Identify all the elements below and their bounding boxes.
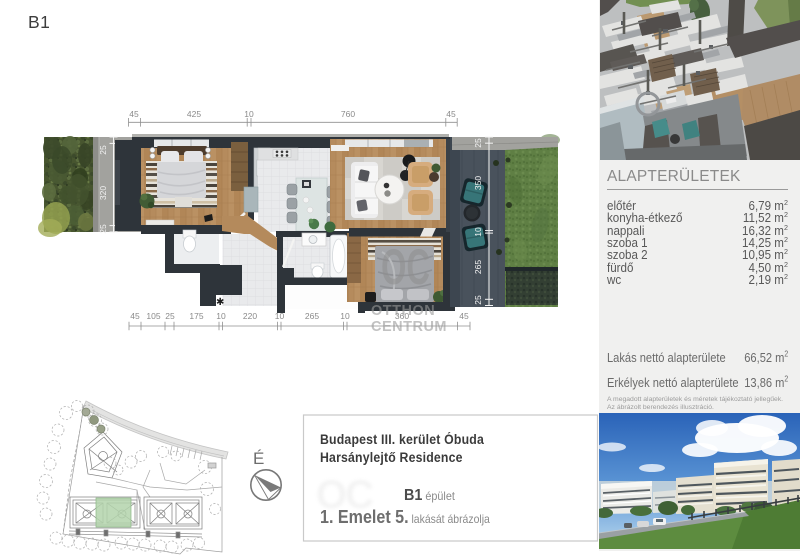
svg-text:25: 25	[98, 224, 108, 234]
svg-text:105: 105	[146, 311, 160, 321]
svg-text:OTTHON: OTTHON	[371, 303, 435, 319]
svg-text:45: 45	[129, 109, 139, 119]
svg-text:265: 265	[473, 260, 483, 274]
svg-text:✱: ✱	[216, 297, 224, 308]
svg-text:25: 25	[473, 138, 483, 148]
svg-text:25: 25	[98, 145, 108, 155]
svg-text:25: 25	[473, 295, 483, 305]
svg-text:25: 25	[165, 311, 175, 321]
svg-text:10: 10	[216, 311, 226, 321]
svg-text:760: 760	[341, 109, 355, 119]
svg-text:220: 220	[243, 311, 257, 321]
svg-text:10: 10	[244, 109, 254, 119]
svg-text:OC: OC	[381, 239, 430, 295]
svg-text:10: 10	[340, 311, 350, 321]
svg-text:175: 175	[189, 311, 203, 321]
svg-text:425: 425	[187, 109, 201, 119]
svg-text:CENTRUM: CENTRUM	[371, 319, 447, 335]
svg-text:320: 320	[98, 186, 108, 200]
svg-text:265: 265	[305, 311, 319, 321]
svg-text:45: 45	[446, 109, 456, 119]
svg-text:45: 45	[459, 311, 469, 321]
svg-text:45: 45	[130, 311, 140, 321]
svg-text:É: É	[253, 449, 264, 468]
svg-text:10: 10	[473, 227, 483, 237]
svg-text:350: 350	[473, 176, 483, 190]
